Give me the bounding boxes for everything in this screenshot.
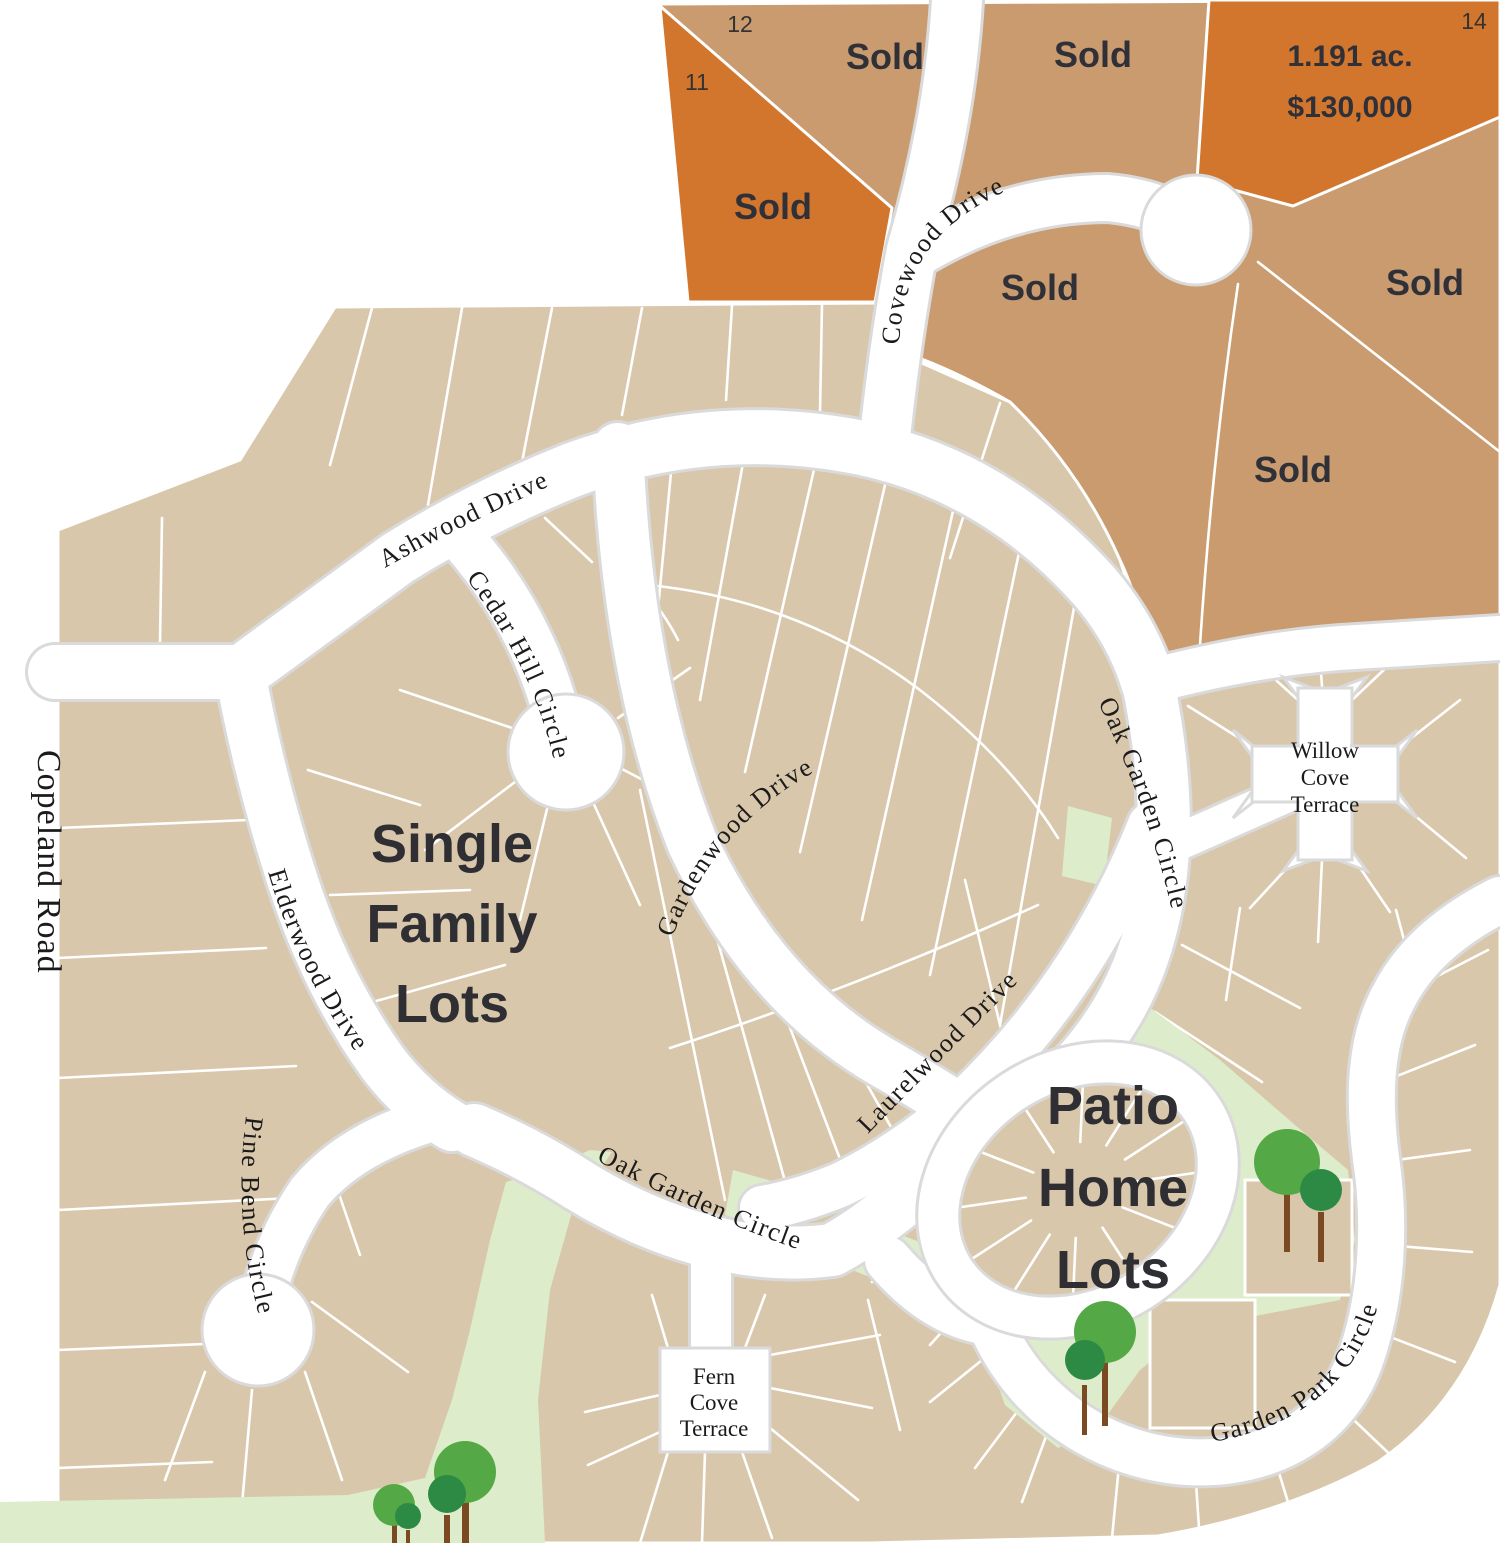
court-label-willow-cove: Willow Cove Terrace xyxy=(1291,738,1360,817)
sold-label-6: Sold xyxy=(1386,262,1464,303)
svg-text:Patio: Patio xyxy=(1047,1076,1179,1136)
svg-text:Family: Family xyxy=(366,894,537,954)
svg-text:Lots: Lots xyxy=(395,974,509,1034)
svg-text:Terrace: Terrace xyxy=(1291,792,1360,817)
svg-text:Fern: Fern xyxy=(693,1364,736,1389)
featured-lot-acreage: 1.191 ac. xyxy=(1287,40,1412,73)
svg-text:Willow: Willow xyxy=(1291,738,1359,763)
patio-block-2 xyxy=(1150,1300,1255,1428)
lot-number-11: 11 xyxy=(685,69,709,95)
plat-map-svg: Ashwood Drive Cedar Hill Circle Covewood… xyxy=(0,0,1500,1543)
sold-label-2: Sold xyxy=(846,36,924,77)
sold-label-3: Sold xyxy=(1054,34,1132,75)
lot-number-14: 14 xyxy=(1461,8,1487,34)
featured-lot-price: $130,000 xyxy=(1287,91,1412,124)
street-label-copeland-road: Copeland Road xyxy=(30,750,67,974)
lot-number-12: 12 xyxy=(727,11,753,37)
sold-label-5: Sold xyxy=(1254,449,1332,490)
svg-text:Cove: Cove xyxy=(690,1390,739,1415)
plat-map-page: Ashwood Drive Cedar Hill Circle Covewood… xyxy=(0,0,1500,1543)
covewood-culdesac xyxy=(1141,175,1251,285)
svg-text:Cove: Cove xyxy=(1301,765,1350,790)
region-patio-home-label: Patio Home Lots xyxy=(1038,1076,1188,1300)
sold-label-4: Sold xyxy=(1001,267,1079,308)
svg-text:Terrace: Terrace xyxy=(680,1416,749,1441)
svg-text:Lots: Lots xyxy=(1056,1240,1170,1300)
sold-label-1: Sold xyxy=(734,186,812,227)
svg-text:Single: Single xyxy=(371,814,533,874)
svg-text:Home: Home xyxy=(1038,1158,1188,1218)
